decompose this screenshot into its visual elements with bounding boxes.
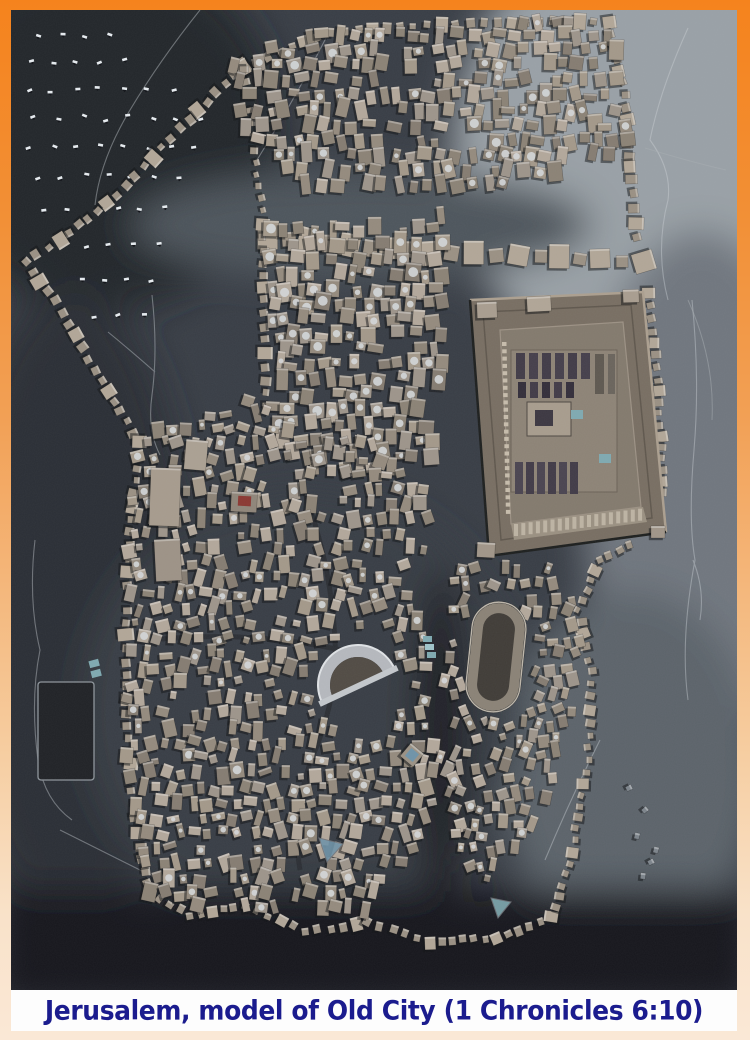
- orange-frame: Jerusalem, model of Old City (1 Chronicl…: [0, 0, 750, 1040]
- jerusalem-model-scene: [11, 10, 737, 990]
- caption-bar: Jerusalem, model of Old City (1 Chronicl…: [11, 990, 737, 1031]
- caption-text: Jerusalem, model of Old City (1 Chronicl…: [45, 995, 703, 1026]
- model-photo: [11, 10, 737, 990]
